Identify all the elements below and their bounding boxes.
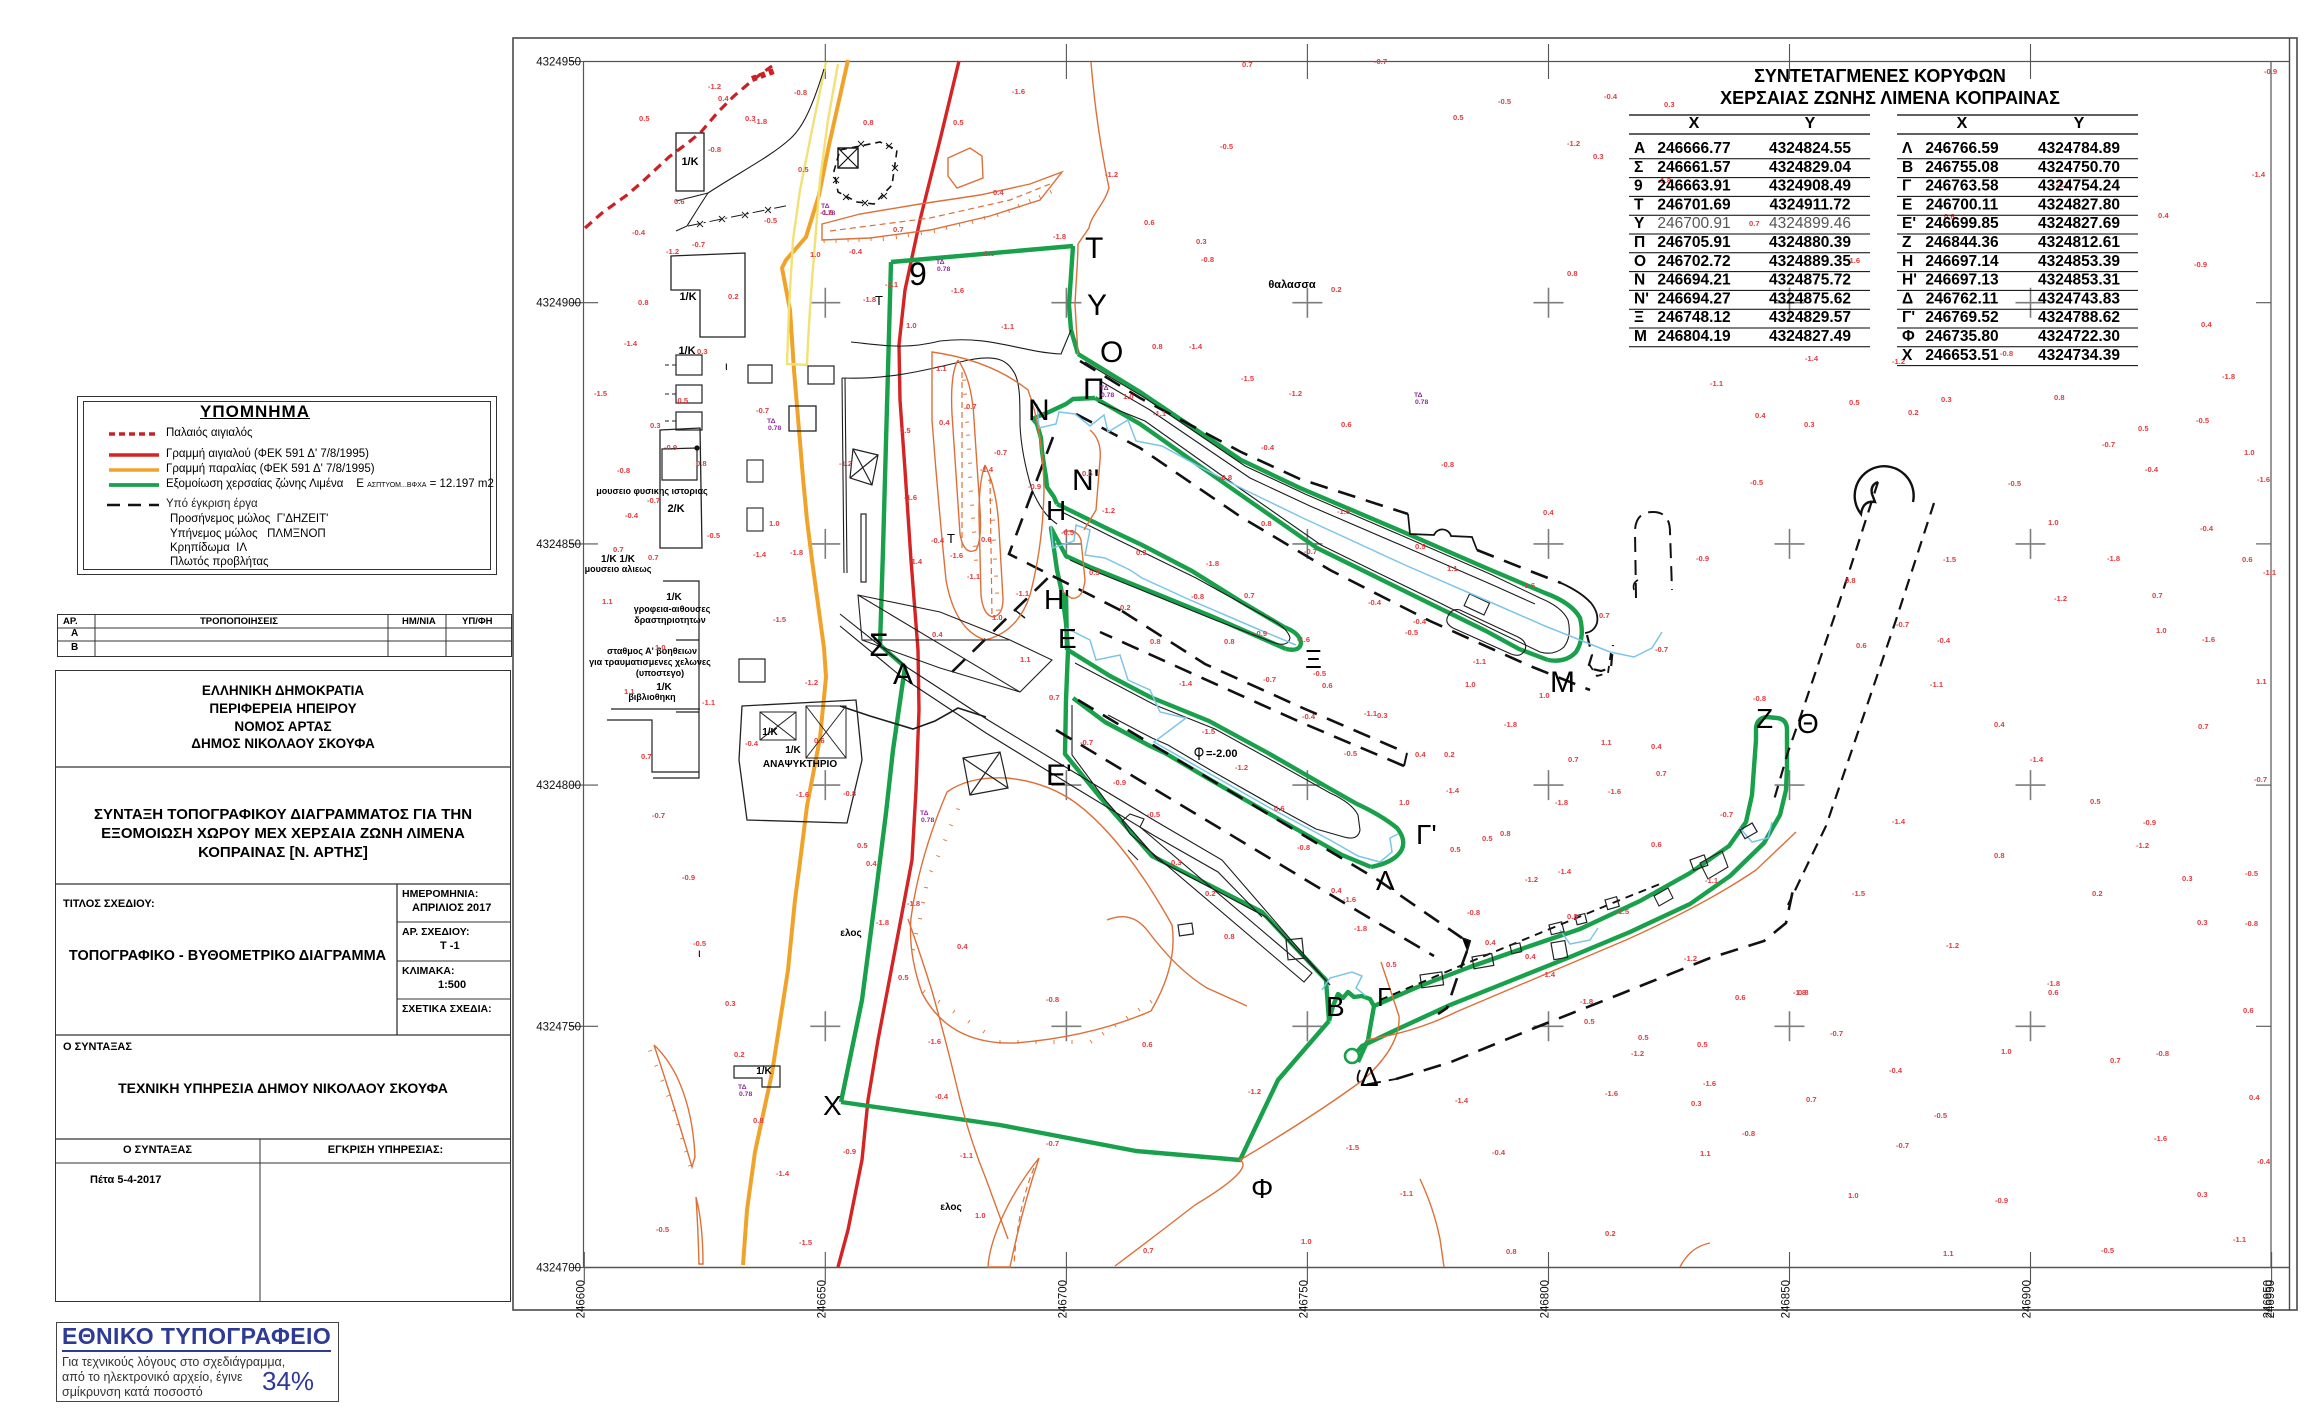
svg-text:Θ: Θ bbox=[1797, 708, 1819, 739]
svg-text:Τ: Τ bbox=[1634, 196, 1644, 213]
svg-text:0.4: 0.4 bbox=[866, 859, 877, 868]
svg-text:1/Κ: 1/Κ bbox=[756, 1066, 772, 1077]
svg-text:-0.5: -0.5 bbox=[2101, 1246, 2115, 1255]
svg-text:0.4: 0.4 bbox=[2249, 1093, 2260, 1102]
svg-text:Y: Y bbox=[1805, 115, 1816, 132]
svg-text:-0.5: -0.5 bbox=[2008, 479, 2022, 488]
svg-text:-1.4: -1.4 bbox=[776, 1169, 790, 1178]
svg-text:Γ': Γ' bbox=[1416, 819, 1437, 850]
svg-text:0.2: 0.2 bbox=[1205, 889, 1216, 898]
svg-text:246697.13: 246697.13 bbox=[1925, 272, 1999, 289]
svg-text:1.0: 1.0 bbox=[2048, 518, 2059, 527]
svg-text:-1.5: -1.5 bbox=[1943, 555, 1957, 564]
svg-text:0.8: 0.8 bbox=[1798, 988, 1809, 997]
svg-text:Χ: Χ bbox=[1902, 347, 1913, 364]
svg-text:-0.7: -0.7 bbox=[1046, 1139, 1059, 1148]
svg-text:ι: ι bbox=[698, 946, 701, 960]
svg-text:-0.9: -0.9 bbox=[664, 443, 677, 452]
svg-text:1.1: 1.1 bbox=[624, 687, 635, 696]
svg-text:-1.6: -1.6 bbox=[1703, 1079, 1716, 1088]
svg-text:-1.1: -1.1 bbox=[1001, 322, 1015, 331]
svg-text:-1.2: -1.2 bbox=[1105, 170, 1118, 179]
svg-text:ΑΝΑΨΥΚΤΗΡΙΟ: ΑΝΑΨΥΚΤΗΡΙΟ bbox=[763, 759, 837, 770]
svg-text:ΣΥΝΤΕΤΑΓΜΕΝΕΣ ΚΟΡΥΦΩΝ: ΣΥΝΤΕΤΑΓΜΕΝΕΣ ΚΟΡΥΦΩΝ bbox=[1754, 66, 2006, 86]
svg-text:0.8: 0.8 bbox=[1224, 932, 1235, 941]
svg-text:246763.58: 246763.58 bbox=[1925, 178, 1999, 195]
svg-text:246697.14: 246697.14 bbox=[1925, 253, 1999, 270]
svg-text:μουσειο αλιεως: μουσειο αλιεως bbox=[585, 564, 652, 574]
svg-text:0.6: 0.6 bbox=[981, 535, 992, 544]
svg-text:-1.2: -1.2 bbox=[1289, 389, 1302, 398]
svg-text:-1.4: -1.4 bbox=[2030, 755, 2044, 764]
svg-text:0.4: 0.4 bbox=[939, 418, 950, 427]
svg-text:0.8: 0.8 bbox=[1150, 637, 1161, 646]
svg-text:-0.5: -0.5 bbox=[1147, 810, 1161, 819]
svg-text:0.3: 0.3 bbox=[2182, 874, 2193, 883]
svg-text:246600: 246600 bbox=[575, 1280, 587, 1318]
svg-text:-0.4: -0.4 bbox=[1604, 92, 1618, 101]
svg-text:1.0: 1.0 bbox=[1301, 1237, 1312, 1246]
svg-text:Γ: Γ bbox=[1377, 982, 1391, 1012]
svg-text:4324829.04: 4324829.04 bbox=[1769, 159, 1851, 176]
svg-text:-0.9: -0.9 bbox=[1696, 554, 1709, 563]
svg-text:0.5: 0.5 bbox=[1638, 1033, 1649, 1042]
svg-text:-0.7: -0.7 bbox=[994, 448, 1007, 457]
svg-text:0.8: 0.8 bbox=[1994, 851, 2005, 860]
svg-text:4324800: 4324800 bbox=[536, 780, 581, 792]
svg-text:-1.8: -1.8 bbox=[1354, 924, 1367, 933]
svg-text:Μ: Μ bbox=[1634, 328, 1647, 345]
svg-text:4324908.49: 4324908.49 bbox=[1769, 178, 1851, 195]
svg-text:0.6: 0.6 bbox=[1651, 840, 1662, 849]
svg-text:-0.9: -0.9 bbox=[2194, 260, 2207, 269]
svg-text:0.3: 0.3 bbox=[1196, 237, 1207, 246]
svg-text:246694.27: 246694.27 bbox=[1657, 290, 1730, 307]
svg-text:0.3: 0.3 bbox=[697, 347, 708, 356]
svg-text:-1.5: -1.5 bbox=[773, 615, 787, 624]
svg-text:4324950: 4324950 bbox=[536, 57, 581, 69]
svg-text:246766.59: 246766.59 bbox=[1925, 140, 1999, 157]
svg-text:0.3: 0.3 bbox=[1941, 395, 1952, 404]
svg-text:Φ: Φ bbox=[1902, 328, 1915, 345]
svg-text:-1.4: -1.4 bbox=[909, 557, 923, 566]
svg-text:-0.4: -0.4 bbox=[1492, 1148, 1506, 1157]
svg-text:-0.5: -0.5 bbox=[1220, 142, 1234, 151]
svg-text:-1.8: -1.8 bbox=[1337, 507, 1350, 516]
svg-text:0.5: 0.5 bbox=[1584, 1017, 1595, 1026]
svg-text:0.7: 0.7 bbox=[2110, 1056, 2121, 1065]
svg-text:-0.4: -0.4 bbox=[2257, 1157, 2271, 1166]
svg-text:0.3: 0.3 bbox=[1691, 1099, 1702, 1108]
svg-text:4324875.72: 4324875.72 bbox=[1769, 272, 1851, 289]
svg-text:-1.2: -1.2 bbox=[1684, 954, 1697, 963]
svg-text:-0.4: -0.4 bbox=[931, 536, 945, 545]
svg-text:2/Κ: 2/Κ bbox=[667, 503, 684, 515]
svg-text:1.0: 1.0 bbox=[1848, 1191, 1859, 1200]
svg-text:-0.5: -0.5 bbox=[1344, 749, 1358, 758]
svg-text:0.3: 0.3 bbox=[2197, 1190, 2208, 1199]
svg-text:0.4: 0.4 bbox=[718, 94, 729, 103]
svg-text:-1.1: -1.1 bbox=[1400, 1189, 1414, 1198]
svg-text:0.8: 0.8 bbox=[1152, 342, 1163, 351]
svg-text:-1.2: -1.2 bbox=[1102, 506, 1115, 515]
svg-text:-1.5: -1.5 bbox=[1202, 727, 1216, 736]
svg-text:0.7: 0.7 bbox=[1806, 1095, 1817, 1104]
svg-text:Χ: Χ bbox=[823, 1090, 842, 1121]
svg-text:-1.1: -1.1 bbox=[2233, 1235, 2247, 1244]
svg-text:-0.4: -0.4 bbox=[2200, 524, 2214, 533]
svg-text:1.0: 1.0 bbox=[655, 643, 666, 652]
svg-text:-0.5: -0.5 bbox=[1934, 1111, 1948, 1120]
svg-text:0.7: 0.7 bbox=[2152, 591, 2163, 600]
svg-text:0.3: 0.3 bbox=[1664, 100, 1675, 109]
svg-text:0.6: 0.6 bbox=[1274, 804, 1285, 813]
svg-text:-0.9: -0.9 bbox=[2264, 67, 2277, 76]
svg-text:Υ: Υ bbox=[1634, 215, 1645, 232]
svg-text:246769.52: 246769.52 bbox=[1925, 309, 1998, 326]
svg-text:-1.6: -1.6 bbox=[928, 1037, 941, 1046]
svg-text:246800: 246800 bbox=[1540, 1280, 1552, 1318]
svg-text:-1.6: -1.6 bbox=[1297, 635, 1310, 644]
svg-text:-1.1: -1.1 bbox=[1153, 409, 1167, 418]
svg-text:-1.6: -1.6 bbox=[904, 493, 917, 502]
svg-text:0.4: 0.4 bbox=[1331, 886, 1342, 895]
svg-text:-0.5: -0.5 bbox=[656, 1225, 670, 1234]
svg-text:-1.8: -1.8 bbox=[1053, 232, 1066, 241]
svg-text:1.1: 1.1 bbox=[1700, 1149, 1711, 1158]
svg-text:-1.5: -1.5 bbox=[1852, 889, 1866, 898]
svg-text:0.8: 0.8 bbox=[1224, 637, 1235, 646]
svg-text:-1.4: -1.4 bbox=[1542, 970, 1556, 979]
svg-text:Τ: Τ bbox=[947, 531, 955, 546]
svg-text:4324784.89: 4324784.89 bbox=[2038, 140, 2120, 157]
svg-text:-1.8: -1.8 bbox=[1555, 798, 1568, 807]
svg-text:Ο: Ο bbox=[1634, 253, 1646, 270]
svg-text:-0.5: -0.5 bbox=[675, 396, 689, 405]
svg-text:-0.4: -0.4 bbox=[745, 739, 759, 748]
svg-text:-1.4: -1.4 bbox=[2252, 170, 2266, 179]
svg-text:246702.72: 246702.72 bbox=[1657, 253, 1730, 270]
svg-text:=-2.00: =-2.00 bbox=[1206, 748, 1238, 760]
svg-text:-0.7: -0.7 bbox=[1896, 620, 1909, 629]
svg-text:-0.4: -0.4 bbox=[1889, 1066, 1903, 1075]
svg-text:0.3: 0.3 bbox=[1804, 420, 1815, 429]
svg-text:0.5: 0.5 bbox=[1415, 542, 1426, 551]
svg-text:0.2: 0.2 bbox=[728, 292, 739, 301]
svg-text:4324853.31: 4324853.31 bbox=[2038, 272, 2120, 289]
svg-text:-1.6: -1.6 bbox=[1605, 1089, 1618, 1098]
svg-text:0.5: 0.5 bbox=[1386, 960, 1397, 969]
svg-text:4324899.46: 4324899.46 bbox=[1769, 215, 1851, 232]
svg-text:Ξ: Ξ bbox=[1634, 309, 1644, 326]
svg-text:-1.4: -1.4 bbox=[753, 550, 767, 559]
svg-text:0.8: 0.8 bbox=[2054, 393, 2065, 402]
svg-text:4324829.57: 4324829.57 bbox=[1769, 309, 1851, 326]
svg-text:-1.1: -1.1 bbox=[1710, 379, 1724, 388]
svg-text:0.3: 0.3 bbox=[1593, 152, 1604, 161]
svg-text:-0.4: -0.4 bbox=[935, 1092, 949, 1101]
svg-text:9: 9 bbox=[1634, 178, 1643, 195]
svg-text:4324750.70: 4324750.70 bbox=[2038, 159, 2120, 176]
svg-text:Μ: Μ bbox=[1550, 666, 1575, 699]
svg-text:ΤΔ: ΤΔ bbox=[767, 418, 776, 425]
svg-text:-1.4: -1.4 bbox=[1446, 786, 1460, 795]
svg-text:-1.8: -1.8 bbox=[907, 899, 920, 908]
svg-text:0.7: 0.7 bbox=[613, 545, 624, 554]
svg-text:-0.5: -0.5 bbox=[693, 939, 707, 948]
svg-text:1.0: 1.0 bbox=[1123, 392, 1134, 401]
svg-text:θαλασσα: θαλασσα bbox=[1268, 279, 1316, 291]
svg-text:-0.4: -0.4 bbox=[1937, 636, 1951, 645]
svg-text:0.4: 0.4 bbox=[932, 630, 943, 639]
svg-text:(υποστεγο): (υποστεγο) bbox=[636, 668, 684, 678]
svg-text:Λ: Λ bbox=[1376, 865, 1395, 896]
svg-text:-0.9: -0.9 bbox=[2143, 818, 2156, 827]
svg-text:-0.4: -0.4 bbox=[2145, 465, 2159, 474]
svg-text:0.3: 0.3 bbox=[1136, 548, 1147, 557]
svg-text:0.8: 0.8 bbox=[1845, 576, 1856, 585]
svg-text:-0.5: -0.5 bbox=[1750, 478, 1764, 487]
svg-text:1.0: 1.0 bbox=[1465, 680, 1476, 689]
svg-text:4324875.62: 4324875.62 bbox=[1769, 290, 1851, 307]
svg-text:4324788.62: 4324788.62 bbox=[2038, 309, 2120, 326]
svg-text:-0.8: -0.8 bbox=[1467, 908, 1480, 917]
svg-text:-1.2: -1.2 bbox=[805, 678, 818, 687]
svg-text:0.78: 0.78 bbox=[768, 425, 781, 432]
svg-text:1.0: 1.0 bbox=[2244, 448, 2255, 457]
svg-text:-0.5: -0.5 bbox=[764, 216, 778, 225]
svg-text:-0.5: -0.5 bbox=[1061, 528, 1075, 537]
svg-text:246750: 246750 bbox=[1298, 1280, 1310, 1318]
svg-text:4324853.39: 4324853.39 bbox=[2038, 253, 2120, 270]
svg-text:-1.8: -1.8 bbox=[790, 548, 803, 557]
svg-text:0.7: 0.7 bbox=[1049, 693, 1060, 702]
svg-text:Υ: Υ bbox=[1087, 289, 1107, 322]
svg-text:246700.11: 246700.11 bbox=[1926, 196, 1999, 213]
svg-text:-1.1: -1.1 bbox=[960, 1151, 974, 1160]
svg-text:-0.7: -0.7 bbox=[1896, 1141, 1909, 1150]
svg-text:0.7: 0.7 bbox=[648, 553, 659, 562]
svg-text:0.2: 0.2 bbox=[1605, 1229, 1616, 1238]
svg-text:1.0: 1.0 bbox=[906, 321, 917, 330]
svg-text:9: 9 bbox=[909, 256, 927, 292]
svg-text:1.1: 1.1 bbox=[1020, 655, 1031, 664]
svg-text:0.3: 0.3 bbox=[725, 999, 736, 1008]
svg-text:0.5: 0.5 bbox=[953, 118, 964, 127]
svg-text:-1.4: -1.4 bbox=[1179, 679, 1193, 688]
svg-text:0.4: 0.4 bbox=[1543, 508, 1554, 517]
svg-text:-1.1: -1.1 bbox=[1705, 876, 1719, 885]
svg-text:-1.2: -1.2 bbox=[1235, 763, 1248, 772]
svg-text:-0.4: -0.4 bbox=[1413, 617, 1427, 626]
svg-text:ελος: ελος bbox=[840, 928, 862, 939]
svg-text:0.78: 0.78 bbox=[822, 210, 835, 217]
svg-text:ι: ι bbox=[725, 359, 728, 373]
svg-text:1/Κ: 1/Κ bbox=[679, 291, 696, 303]
svg-text:0.3: 0.3 bbox=[1171, 858, 1182, 867]
svg-text:4324750: 4324750 bbox=[536, 1021, 581, 1033]
svg-text:-1.6: -1.6 bbox=[2202, 635, 2215, 644]
svg-text:-1.6: -1.6 bbox=[796, 790, 809, 799]
svg-text:-0.8: -0.8 bbox=[2156, 1049, 2169, 1058]
svg-text:246666.77: 246666.77 bbox=[1657, 140, 1730, 157]
svg-text:-0.8: -0.8 bbox=[2000, 349, 2013, 358]
svg-text:Τ: Τ bbox=[1085, 232, 1103, 265]
svg-text:Ε: Ε bbox=[1902, 196, 1912, 213]
svg-text:για τραυματισμενες χελωνες: για τραυματισμενες χελωνες bbox=[589, 657, 711, 667]
svg-text:1/Κ: 1/Κ bbox=[678, 345, 695, 357]
svg-text:4324812.61: 4324812.61 bbox=[2038, 234, 2120, 251]
svg-text:4324827.80: 4324827.80 bbox=[2038, 196, 2120, 213]
svg-text:-1.6: -1.6 bbox=[2154, 1134, 2167, 1143]
svg-text:1.0: 1.0 bbox=[2156, 626, 2167, 635]
svg-text:-1.2: -1.2 bbox=[839, 459, 852, 468]
svg-text:-0.8: -0.8 bbox=[843, 789, 856, 798]
svg-text:0.6: 0.6 bbox=[674, 197, 685, 206]
svg-text:-1.6: -1.6 bbox=[1608, 787, 1621, 796]
svg-text:-0.7: -0.7 bbox=[652, 811, 665, 820]
svg-text:Δ: Δ bbox=[1360, 1061, 1379, 1092]
svg-text:-0.4: -0.4 bbox=[1368, 598, 1382, 607]
svg-text:-1.8: -1.8 bbox=[863, 295, 876, 304]
svg-text:-0.9: -0.9 bbox=[1113, 778, 1126, 787]
svg-text:246700.91: 246700.91 bbox=[1657, 215, 1730, 232]
svg-text:Η: Η bbox=[1046, 495, 1066, 526]
svg-text:-1.2: -1.2 bbox=[1248, 1087, 1261, 1096]
svg-text:-0.9: -0.9 bbox=[682, 873, 695, 882]
svg-text:-0.7: -0.7 bbox=[756, 406, 769, 415]
svg-text:Ε': Ε' bbox=[1046, 759, 1072, 792]
svg-text:Λ: Λ bbox=[1902, 140, 1913, 157]
svg-text:-1.2: -1.2 bbox=[2136, 841, 2149, 850]
svg-text:-0.8: -0.8 bbox=[794, 88, 807, 97]
svg-text:Ε': Ε' bbox=[1902, 215, 1916, 232]
svg-text:0.8: 0.8 bbox=[696, 459, 707, 468]
svg-text:ΤΔ: ΤΔ bbox=[920, 810, 929, 817]
svg-text:Ε: Ε bbox=[1058, 623, 1077, 654]
svg-text:0.78: 0.78 bbox=[937, 266, 950, 273]
svg-text:0.4: 0.4 bbox=[1994, 720, 2005, 729]
svg-text:246844.36: 246844.36 bbox=[1925, 234, 1999, 251]
svg-text:0.7: 0.7 bbox=[1143, 1246, 1154, 1255]
svg-text:-1.8: -1.8 bbox=[2047, 979, 2060, 988]
svg-text:1/Κ: 1/Κ bbox=[762, 727, 778, 738]
svg-text:-1.6: -1.6 bbox=[1343, 895, 1356, 904]
svg-text:Ν': Ν' bbox=[1634, 290, 1649, 307]
svg-text:0.5: 0.5 bbox=[2090, 797, 2101, 806]
svg-text:-1.1: -1.1 bbox=[1930, 680, 1944, 689]
svg-text:-0.8: -0.8 bbox=[1201, 255, 1214, 264]
svg-text:0.2: 0.2 bbox=[1908, 408, 1919, 417]
svg-text:0.7: 0.7 bbox=[1242, 60, 1253, 69]
svg-text:-0.8: -0.8 bbox=[1219, 473, 1232, 482]
svg-text:-0.7: -0.7 bbox=[1720, 810, 1733, 819]
svg-text:0.6: 0.6 bbox=[1856, 641, 1867, 650]
svg-text:-0.7: -0.7 bbox=[1080, 738, 1093, 747]
svg-text:0.5: 0.5 bbox=[639, 114, 650, 123]
svg-text:ΤΔ: ΤΔ bbox=[936, 259, 945, 266]
svg-text:246748.12: 246748.12 bbox=[1657, 309, 1730, 326]
svg-text:4324754.24: 4324754.24 bbox=[2038, 178, 2120, 195]
svg-text:4324700: 4324700 bbox=[536, 1263, 581, 1275]
svg-text:-0.8: -0.8 bbox=[1297, 843, 1310, 852]
svg-text:-1.8: -1.8 bbox=[2222, 372, 2235, 381]
svg-text:-0.8: -0.8 bbox=[1441, 460, 1454, 469]
svg-text:-1.8: -1.8 bbox=[876, 918, 889, 927]
svg-text:-1.1: -1.1 bbox=[967, 572, 981, 581]
svg-text:0.6: 0.6 bbox=[1142, 1040, 1153, 1049]
svg-text:0.4: 0.4 bbox=[957, 942, 968, 951]
svg-text:4324889.35: 4324889.35 bbox=[1769, 253, 1851, 270]
svg-text:246650: 246650 bbox=[816, 1280, 828, 1318]
svg-text:Β: Β bbox=[1902, 159, 1913, 176]
svg-text:0.7: 0.7 bbox=[1568, 755, 1579, 764]
svg-text:246804.19: 246804.19 bbox=[1657, 328, 1731, 345]
svg-text:-0.4: -0.4 bbox=[632, 228, 646, 237]
svg-text:1.0: 1.0 bbox=[2001, 1047, 2012, 1056]
svg-text:-1.1: -1.1 bbox=[885, 280, 899, 289]
svg-text:246663.91: 246663.91 bbox=[1657, 178, 1731, 195]
svg-text:Σ: Σ bbox=[869, 627, 889, 663]
svg-text:ΤΔ: ΤΔ bbox=[1414, 392, 1423, 399]
svg-text:-1.6: -1.6 bbox=[1522, 581, 1535, 590]
svg-text:0.5: 0.5 bbox=[1450, 845, 1461, 854]
svg-text:1/Κ: 1/Κ bbox=[785, 745, 801, 756]
svg-text:Y: Y bbox=[2074, 115, 2085, 132]
svg-text:246653.51: 246653.51 bbox=[1925, 347, 1999, 364]
svg-text:Φ: Φ bbox=[1251, 1173, 1273, 1204]
svg-text:μουσειο φυσικης ιστοριας: μουσειο φυσικης ιστοριας bbox=[596, 486, 708, 496]
svg-text:1/Κ: 1/Κ bbox=[666, 592, 682, 603]
svg-text:-1.5: -1.5 bbox=[1616, 907, 1630, 916]
svg-text:-1.4: -1.4 bbox=[624, 339, 638, 348]
svg-text:-1.1: -1.1 bbox=[1016, 589, 1030, 598]
svg-text:0.5: 0.5 bbox=[1849, 398, 1860, 407]
svg-text:Ζ: Ζ bbox=[1756, 703, 1773, 734]
svg-text:0.8: 0.8 bbox=[638, 298, 649, 307]
svg-text:Π: Π bbox=[1634, 234, 1645, 251]
svg-text:-1.1: -1.1 bbox=[2263, 568, 2277, 577]
svg-text:4324900: 4324900 bbox=[536, 298, 581, 310]
svg-text:0.5: 0.5 bbox=[798, 165, 809, 174]
svg-text:0.6: 0.6 bbox=[1341, 420, 1352, 429]
svg-text:-0.4: -0.4 bbox=[1261, 443, 1275, 452]
svg-text:0.8: 0.8 bbox=[1261, 519, 1272, 528]
svg-text:-0.9: -0.9 bbox=[1254, 629, 1267, 638]
svg-text:4324880.39: 4324880.39 bbox=[1769, 234, 1851, 251]
svg-text:4324827.69: 4324827.69 bbox=[2038, 215, 2120, 232]
svg-text:0.5: 0.5 bbox=[1482, 834, 1493, 843]
svg-text:Η: Η bbox=[1902, 253, 1913, 270]
svg-text:-1.1: -1.1 bbox=[702, 698, 716, 707]
svg-text:-1.2: -1.2 bbox=[666, 247, 679, 256]
svg-text:0.78: 0.78 bbox=[1415, 399, 1428, 406]
svg-text:-1.1: -1.1 bbox=[1473, 657, 1487, 666]
svg-text:-1.2: -1.2 bbox=[1525, 875, 1538, 884]
svg-text:-1.6: -1.6 bbox=[951, 286, 964, 295]
svg-text:0.8: 0.8 bbox=[1567, 269, 1578, 278]
svg-text:-0.8: -0.8 bbox=[1742, 1129, 1755, 1138]
svg-text:ελος: ελος bbox=[940, 1202, 962, 1213]
svg-text:0.4: 0.4 bbox=[1651, 742, 1662, 751]
svg-text:0.2: 0.2 bbox=[2092, 889, 2103, 898]
svg-text:0.7: 0.7 bbox=[893, 225, 904, 234]
svg-text:1.0: 1.0 bbox=[1399, 798, 1410, 807]
svg-text:-0.9: -0.9 bbox=[1995, 1196, 2008, 1205]
svg-text:-1.6: -1.6 bbox=[950, 551, 963, 560]
svg-text:0.7: 0.7 bbox=[1244, 591, 1255, 600]
svg-text:0.3: 0.3 bbox=[1377, 711, 1388, 720]
